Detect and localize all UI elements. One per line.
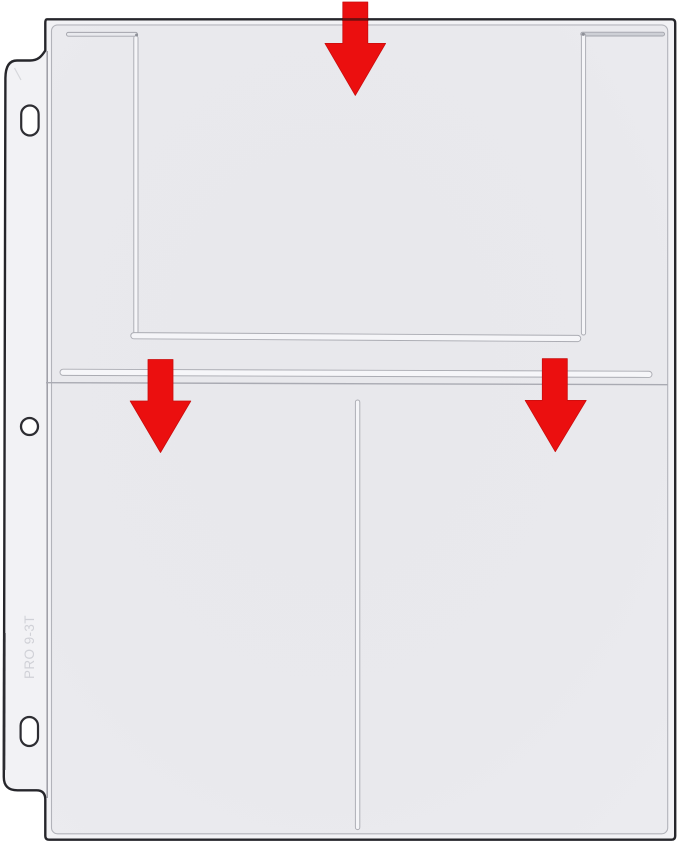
svg-text:PRO 9-3T: PRO 9-3T [22,615,37,679]
